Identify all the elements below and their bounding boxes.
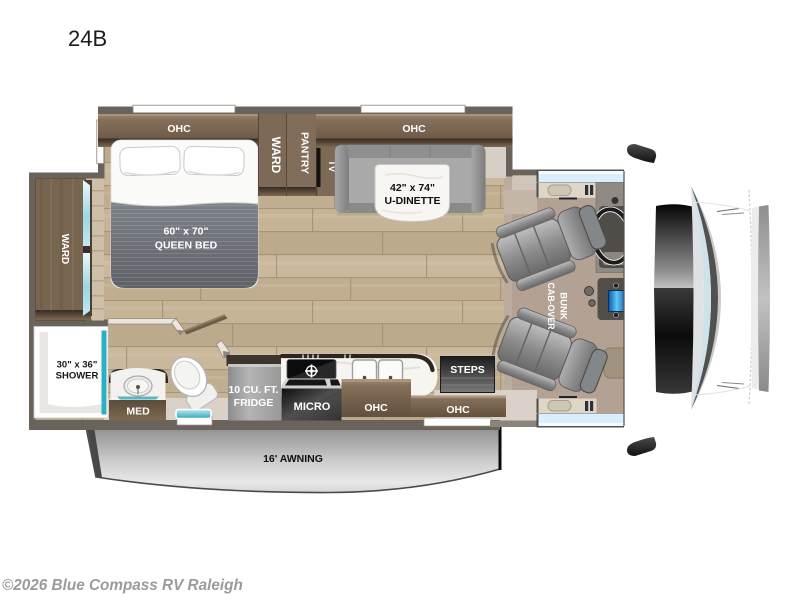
svg-text:BUNK: BUNK <box>558 292 569 320</box>
svg-text:WARD: WARD <box>59 234 70 265</box>
svg-text:OHC: OHC <box>364 402 388 414</box>
svg-text:QUEEN BED: QUEEN BED <box>155 240 218 252</box>
svg-text:U-DINETTE: U-DINETTE <box>385 195 441 207</box>
svg-text:10 CU. FT.: 10 CU. FT. <box>228 384 278 396</box>
svg-text:42" x 74": 42" x 74" <box>390 182 435 194</box>
svg-text:OHC: OHC <box>446 404 470 416</box>
svg-text:30" x 36": 30" x 36" <box>57 360 98 371</box>
svg-text:60" x 70": 60" x 70" <box>164 226 209 238</box>
svg-text:MED: MED <box>126 406 150 418</box>
svg-text:MICRO: MICRO <box>294 401 331 413</box>
svg-text:PANTRY: PANTRY <box>299 132 311 174</box>
svg-text:SHOWER: SHOWER <box>56 371 99 382</box>
svg-text:WARD: WARD <box>269 137 283 174</box>
svg-text:FRIDGE: FRIDGE <box>234 397 274 409</box>
svg-text:OHC: OHC <box>402 123 426 135</box>
svg-text:24B: 24B <box>68 26 107 51</box>
svg-text:16' AWNING: 16' AWNING <box>263 453 323 465</box>
svg-text:CAB-OVER: CAB-OVER <box>546 283 556 331</box>
svg-text:STEPS: STEPS <box>450 364 484 376</box>
svg-text:©2026 Blue Compass RV Raleigh: ©2026 Blue Compass RV Raleigh <box>2 577 243 594</box>
svg-text:OHC: OHC <box>167 123 191 135</box>
